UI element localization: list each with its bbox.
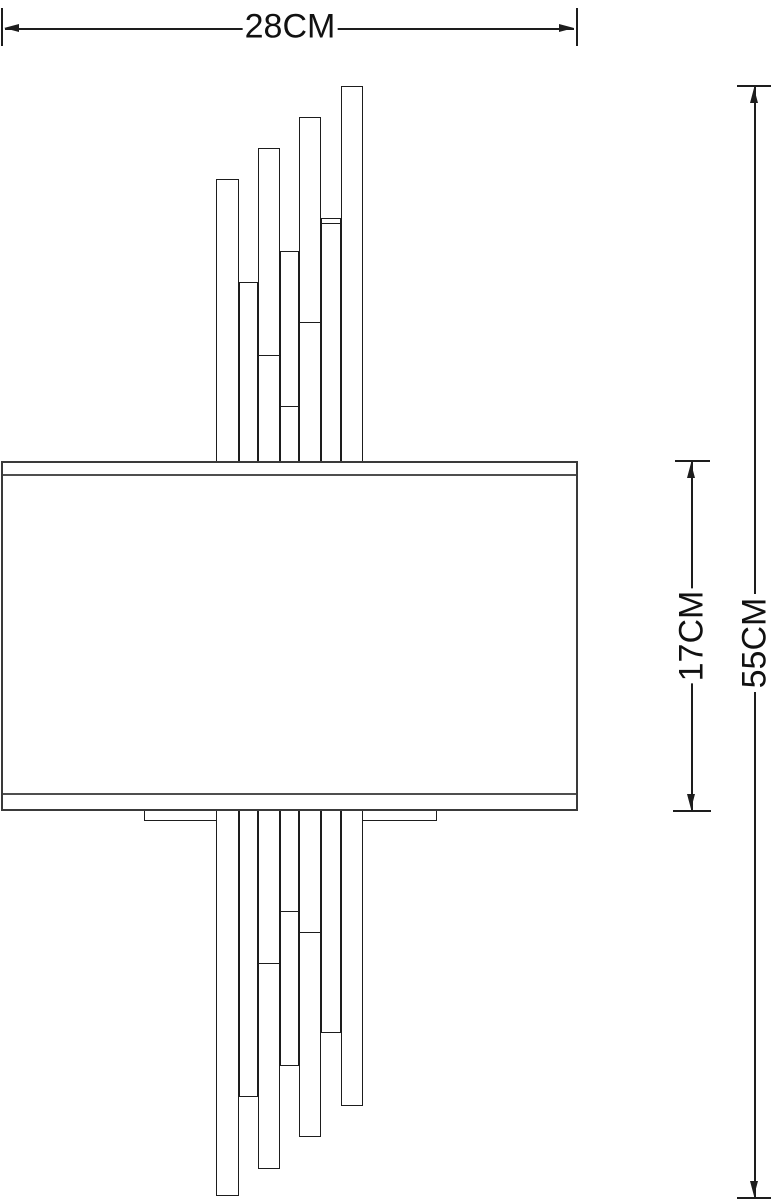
lamp-shade: [1, 461, 578, 811]
rod-segment-joint: [259, 355, 279, 357]
rod-segment-joint: [300, 322, 320, 324]
shade-top-band-line: [3, 474, 576, 476]
shade-bottom-band-line: [3, 793, 576, 795]
rod-segment-joint: [259, 963, 279, 965]
rod-segment-joint: [300, 932, 320, 934]
wall-lamp-drawing: [0, 0, 771, 1200]
rod-segment-joint: [322, 223, 340, 225]
rod-segment-joint: [281, 911, 298, 913]
drawing-canvas: 28CM 17CM 55CM: [0, 0, 771, 1200]
rod-segment-joint: [281, 406, 298, 408]
